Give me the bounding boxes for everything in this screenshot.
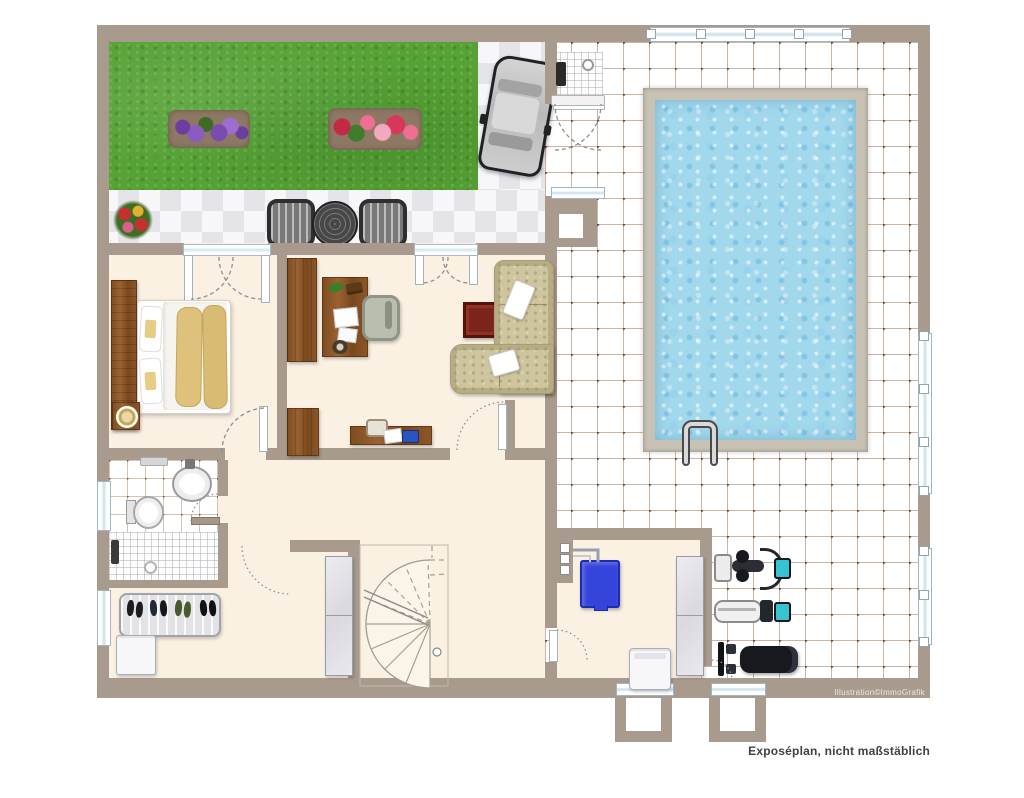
door-leaf <box>261 255 270 303</box>
wall-bathroom-right-2 <box>218 523 228 580</box>
rower-pad <box>714 600 762 623</box>
wall-vent <box>560 565 570 575</box>
window-post <box>919 486 929 496</box>
cushion <box>145 320 157 339</box>
bath-shelf <box>140 457 168 466</box>
window-post <box>919 437 929 447</box>
window-post <box>919 590 929 600</box>
door-leaf <box>415 255 424 285</box>
wall-vent <box>560 543 570 553</box>
rack-post <box>726 664 736 674</box>
rowing-machine <box>712 592 790 628</box>
blanket-runner <box>202 305 228 409</box>
utility-door-leaf <box>549 630 558 662</box>
sink <box>172 466 212 502</box>
cushion <box>145 372 157 391</box>
wall-rooms-top-1 <box>109 243 184 255</box>
window-post <box>646 29 656 39</box>
car-roof <box>491 92 541 135</box>
window-post <box>696 29 706 39</box>
wardrobe-divider <box>326 615 352 616</box>
shelf-low <box>287 408 319 456</box>
bistro-chair-left <box>267 199 315 247</box>
pillow <box>139 305 163 352</box>
wall-bathroom-bottom <box>109 580 228 588</box>
window-post <box>919 384 929 394</box>
boiler-notch <box>594 605 608 611</box>
bench-pad <box>740 646 798 673</box>
threshold-bedroom-door <box>183 244 271 256</box>
disclaimer: Exposéplan, nicht maßstäblich <box>630 744 930 758</box>
door-leaf <box>259 406 268 452</box>
blanket-runner <box>175 307 203 407</box>
desk-bowl <box>332 340 348 354</box>
wall-rooms-top-2 <box>268 243 415 255</box>
window-post <box>842 29 852 39</box>
bike-pad <box>714 554 732 582</box>
flower-pot <box>112 200 154 240</box>
bike-console <box>774 558 791 579</box>
chimney-shaft <box>559 214 583 238</box>
boiler <box>580 560 620 608</box>
washing-machine-panel <box>634 653 666 659</box>
wall-bedroom-office <box>277 255 287 455</box>
door-leaf <box>184 255 193 303</box>
window-hall <box>97 590 111 646</box>
flower-bed-purple <box>168 110 250 148</box>
outdoor-shower-drain <box>582 59 594 71</box>
cabinet-divider <box>677 615 703 616</box>
shower-bench <box>551 95 605 106</box>
window-post <box>745 29 755 39</box>
bistro-table <box>312 201 358 247</box>
bathroom-door-leaf <box>191 517 220 525</box>
shower-floor <box>109 532 218 580</box>
window-post <box>794 29 804 39</box>
hall-wardrobe <box>325 556 353 676</box>
washing-machine <box>629 648 671 690</box>
toilet <box>133 496 164 529</box>
door-leaf <box>498 404 507 450</box>
window-vestibule <box>551 187 605 199</box>
faucet <box>185 459 195 469</box>
utility-cabinet <box>676 556 704 676</box>
rower-rail <box>718 608 756 611</box>
flower-bed-red <box>328 108 422 150</box>
papers <box>383 428 403 444</box>
light-well-1-bottom <box>615 731 672 742</box>
door-leaf <box>469 255 478 285</box>
office-chair-backrest <box>385 301 392 329</box>
floor-plan: Illustration©ImmoGrafik Exposéplan, nich… <box>0 0 1024 798</box>
laptop <box>402 430 419 443</box>
wall-hall-utility-2 <box>545 662 557 678</box>
wall-corridor <box>290 540 350 552</box>
light-well-2-bottom <box>709 731 766 742</box>
window-post <box>919 637 929 647</box>
pool-water <box>655 100 856 440</box>
wall-vent <box>560 554 570 564</box>
shower-fixture <box>111 540 119 564</box>
rower-console <box>774 602 791 622</box>
storage-box <box>116 635 156 675</box>
wall-bathroom-right-1 <box>218 460 228 496</box>
nightstand-clock <box>115 405 139 429</box>
watermark: Illustration©ImmoGrafik <box>700 688 925 697</box>
window-pool-right <box>918 333 932 494</box>
bike-wheel <box>736 569 749 582</box>
window-bathroom <box>97 481 111 531</box>
shower-drain <box>144 561 157 574</box>
exercise-bike <box>712 548 790 584</box>
weight-bench <box>716 640 800 680</box>
rower-block <box>760 600 773 622</box>
office-chair <box>362 295 400 341</box>
pillow <box>139 357 163 404</box>
window-post <box>919 331 929 341</box>
bike-wheel <box>736 550 749 563</box>
bookshelf <box>287 258 317 362</box>
rack-post <box>726 644 736 654</box>
outdoor-shower-fixture <box>556 62 566 86</box>
bistro-chair-right <box>359 199 407 247</box>
papers <box>333 307 359 328</box>
wall-hall-utility-1 <box>545 540 557 628</box>
window-post <box>919 546 929 556</box>
barbell <box>718 642 724 676</box>
